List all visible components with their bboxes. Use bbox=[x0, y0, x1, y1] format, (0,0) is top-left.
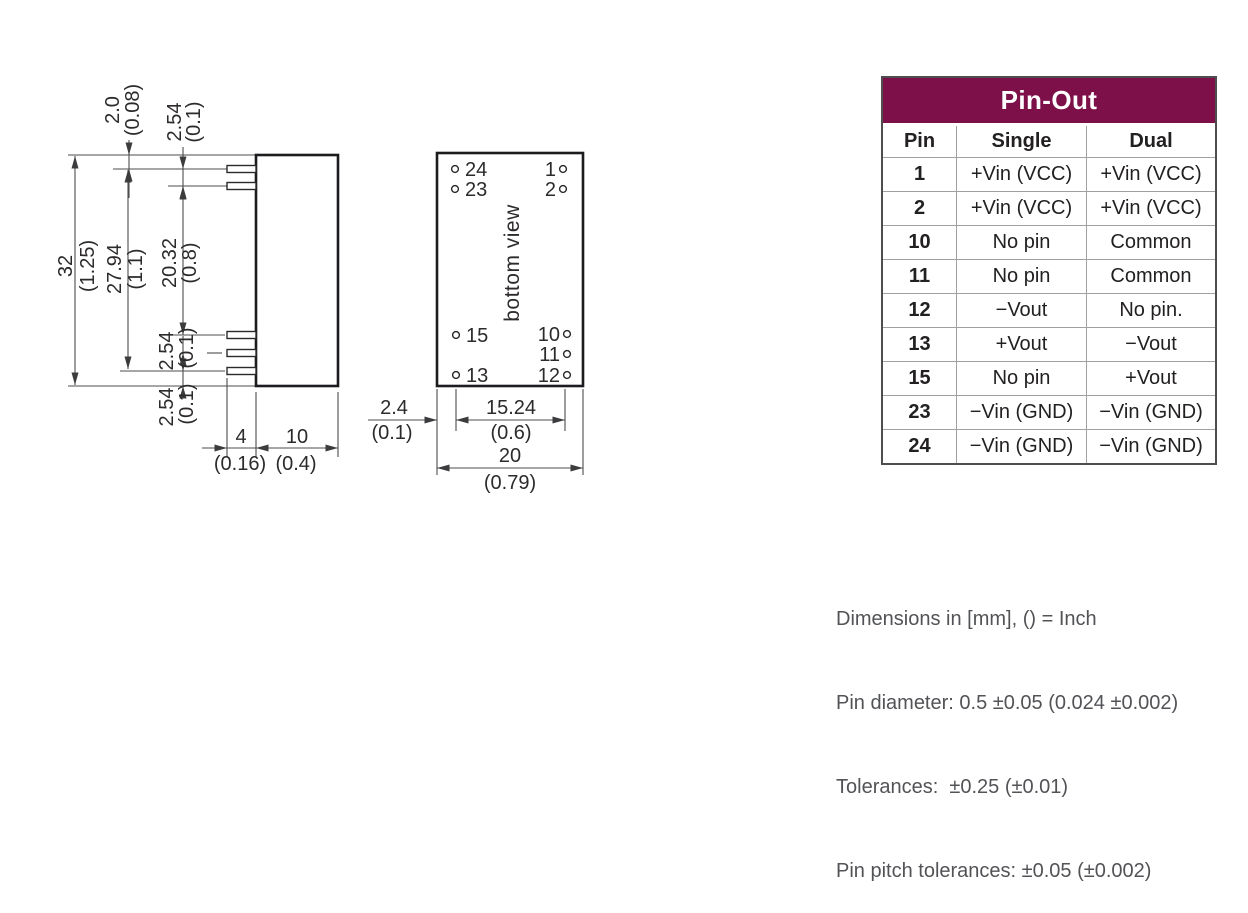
pin-label-10: 10 bbox=[538, 324, 560, 346]
single-cell: −Vout bbox=[957, 294, 1087, 328]
single-cell: No pin bbox=[957, 226, 1087, 260]
single-cell: +Vout bbox=[957, 328, 1087, 362]
bottom-view-drawing: 24 23 15 13 1 2 10 11 12 bottom view 2.4 bbox=[368, 153, 583, 494]
pin-cell: 12 bbox=[883, 294, 957, 328]
pin-label-11: 11 bbox=[539, 344, 560, 366]
dim-label-top-pitch-inch: (0.1) bbox=[183, 101, 205, 142]
pin-cell: 13 bbox=[883, 328, 957, 362]
single-cell: No pin bbox=[957, 362, 1087, 396]
pinout-header-row: Pin Single Dual bbox=[883, 126, 1215, 158]
dim-label-top-offset: 2.0 bbox=[102, 96, 124, 124]
dim-label-pin-span: 27.94 bbox=[104, 244, 126, 294]
module-pins-side bbox=[227, 166, 256, 375]
dim-label-depth-inch: (0.4) bbox=[275, 453, 316, 475]
pin-cell: 10 bbox=[883, 226, 957, 260]
dual-cell: No pin. bbox=[1087, 294, 1215, 328]
single-cell: +Vin (VCC) bbox=[957, 158, 1087, 192]
pin-label-2: 2 bbox=[545, 179, 556, 201]
single-cell: −Vin (GND) bbox=[957, 430, 1087, 463]
package-dimension-drawing: 32 (1.25) 27.94 (1.1) 20.32 (0.8) 2.0 (0… bbox=[0, 0, 660, 520]
pinout-table-title: Pin-Out bbox=[883, 78, 1215, 126]
table-row: 2 +Vin (VCC) +Vin (VCC) bbox=[883, 192, 1215, 226]
note-units: Dimensions in [mm], () = Inch bbox=[836, 605, 1178, 633]
table-row: 11 No pin Common bbox=[883, 260, 1215, 294]
dual-cell: +Vout bbox=[1087, 362, 1215, 396]
column-header-pin: Pin bbox=[883, 126, 957, 158]
pin-cell: 15 bbox=[883, 362, 957, 396]
column-header-dual: Dual bbox=[1087, 126, 1215, 158]
dim-label-row-span: 15.24 bbox=[486, 397, 536, 419]
pin-label-12: 12 bbox=[538, 365, 560, 387]
note-pin-diameter: Pin diameter: 0.5 ±0.05 (0.024 ±0.002) bbox=[836, 689, 1178, 717]
pin-label-24: 24 bbox=[465, 159, 487, 181]
dim-label-depth: 10 bbox=[286, 426, 308, 448]
dim-label-width-inch: (0.79) bbox=[484, 472, 536, 494]
dual-cell: +Vin (VCC) bbox=[1087, 192, 1215, 226]
dimension-notes: Dimensions in [mm], () = Inch Pin diamet… bbox=[836, 549, 1178, 913]
dual-cell: −Vout bbox=[1087, 328, 1215, 362]
dim-label-pin-length-inch: (0.16) bbox=[214, 453, 266, 475]
table-row: 10 No pin Common bbox=[883, 226, 1215, 260]
dim-label-top-offset-inch: (0.08) bbox=[122, 84, 144, 136]
pin-cell: 1 bbox=[883, 158, 957, 192]
pin-cell: 2 bbox=[883, 192, 957, 226]
pin-label-23: 23 bbox=[465, 179, 487, 201]
table-row: 15 No pin +Vout bbox=[883, 362, 1215, 396]
dim-label-height: 32 bbox=[55, 255, 77, 277]
pinout-table: Pin-Out Pin Single Dual 1 +Vin (VCC) +Vi… bbox=[881, 76, 1217, 465]
column-header-single: Single bbox=[957, 126, 1087, 158]
table-row: 12 −Vout No pin. bbox=[883, 294, 1215, 328]
dim-label-edge-offset: 2.4 bbox=[380, 397, 408, 419]
pin-cell: 23 bbox=[883, 396, 957, 430]
table-row: 13 +Vout −Vout bbox=[883, 328, 1215, 362]
module-case-side bbox=[256, 155, 338, 386]
dim-label-row-span-inch: (0.6) bbox=[490, 422, 531, 444]
dim-label-bottom-pitch: 2.54 bbox=[156, 332, 178, 371]
note-tolerances: Tolerances: ±0.25 (±0.01) bbox=[836, 773, 1178, 801]
dual-cell: −Vin (GND) bbox=[1087, 396, 1215, 430]
dual-cell: Common bbox=[1087, 260, 1215, 294]
single-cell: +Vin (VCC) bbox=[957, 192, 1087, 226]
dim-label-bottom-offset: 2.54 bbox=[156, 388, 178, 427]
single-cell: No pin bbox=[957, 260, 1087, 294]
pin-cell: 11 bbox=[883, 260, 957, 294]
table-row: 1 +Vin (VCC) +Vin (VCC) bbox=[883, 158, 1215, 192]
pinout-title-row: Pin-Out bbox=[883, 78, 1215, 126]
bottom-view-label: bottom view bbox=[501, 204, 524, 322]
dim-label-bottom-offset-inch: (0.1) bbox=[176, 383, 198, 424]
table-row: 23 −Vin (GND) −Vin (GND) bbox=[883, 396, 1215, 430]
dual-cell: +Vin (VCC) bbox=[1087, 158, 1215, 192]
table-row: 24 −Vin (GND) −Vin (GND) bbox=[883, 430, 1215, 463]
pin-label-1: 1 bbox=[545, 159, 556, 181]
dim-label-pin-length: 4 bbox=[235, 426, 246, 448]
side-view-drawing: 32 (1.25) 27.94 (1.1) 20.32 (0.8) 2.0 (0… bbox=[55, 84, 338, 475]
pin-label-13: 13 bbox=[466, 365, 488, 387]
pin-label-15: 15 bbox=[466, 325, 488, 347]
dim-label-inner-span: 20.32 bbox=[159, 238, 181, 288]
dim-label-edge-offset-inch: (0.1) bbox=[371, 422, 412, 444]
dim-label-inner-span-inch: (0.8) bbox=[179, 242, 201, 283]
dim-label-bottom-pitch-inch: (0.1) bbox=[176, 327, 198, 368]
note-pitch-tolerance: Pin pitch tolerances: ±0.05 (±0.002) bbox=[836, 857, 1178, 885]
dual-cell: −Vin (GND) bbox=[1087, 430, 1215, 463]
dim-label-pin-span-inch: (1.1) bbox=[125, 248, 147, 289]
dual-cell: Common bbox=[1087, 226, 1215, 260]
dim-label-height-inch: (1.25) bbox=[77, 240, 99, 292]
single-cell: −Vin (GND) bbox=[957, 396, 1087, 430]
dim-label-width: 20 bbox=[499, 445, 521, 467]
pin-cell: 24 bbox=[883, 430, 957, 463]
